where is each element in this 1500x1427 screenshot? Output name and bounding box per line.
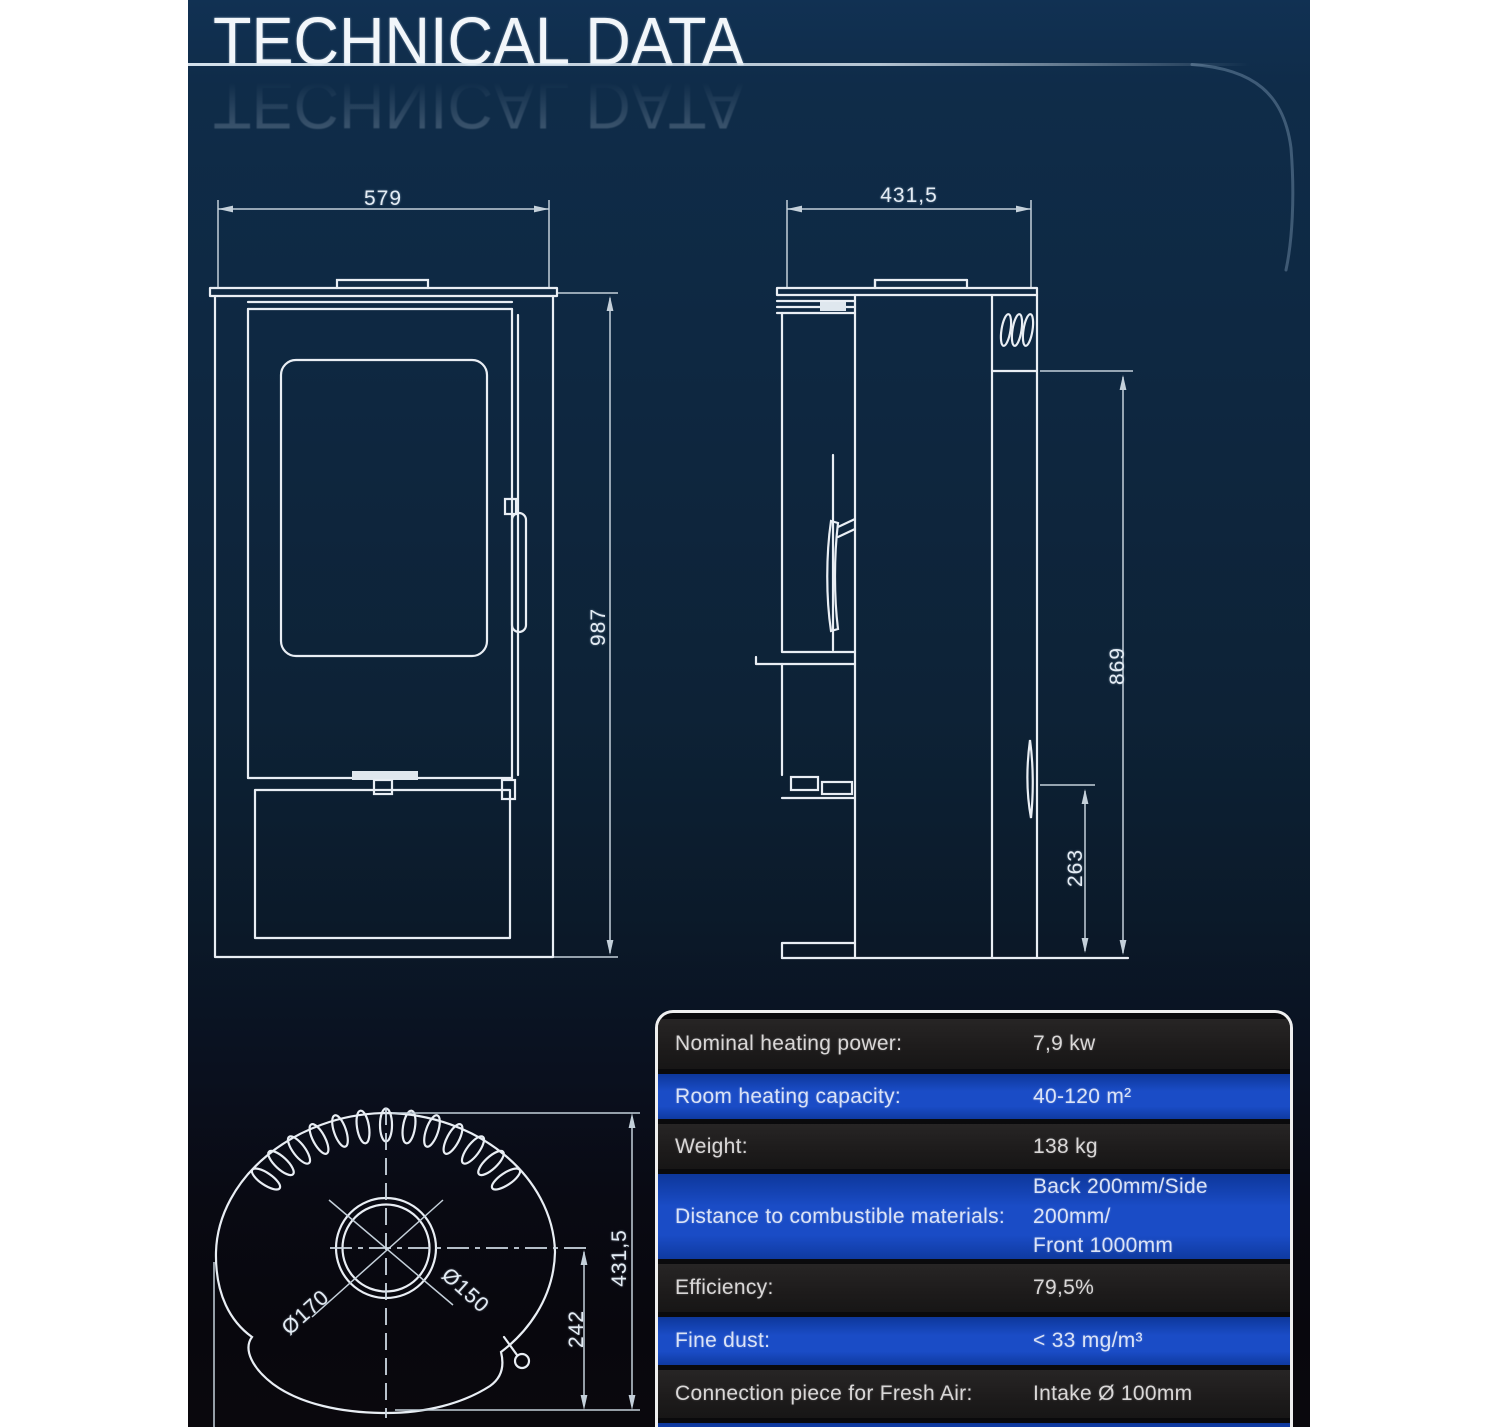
spec-row-weight: Weight: 138 kg xyxy=(658,1124,1290,1169)
swoosh-curve xyxy=(1192,65,1293,271)
spec-label: Room heating capacity: xyxy=(658,1085,1033,1109)
spec-row-distance-to-combustibles: Distance to combustible materials: Back … xyxy=(658,1174,1290,1259)
spec-row-efficiency: Efficiency: 79,5% xyxy=(658,1264,1290,1312)
side-view-drawing xyxy=(756,200,1133,958)
dim-top-center-offset: 242 xyxy=(565,1310,589,1348)
dim-side-base-height: 263 xyxy=(1064,849,1088,887)
technical-data-page: TECHNICAL DATA TECHNICAL DATA xyxy=(0,0,1500,1427)
spec-value-line2: Front 1000mm xyxy=(1033,1234,1173,1257)
spec-label: Fine dust: xyxy=(658,1329,1033,1353)
spec-value: < 33 mg/m³ xyxy=(1033,1326,1290,1355)
spec-row-fresh-air-connection: Connection piece for Fresh Air: Intake Ø… xyxy=(658,1370,1290,1418)
spec-value: Back 200mm/Side 200mm/ Front 1000mm xyxy=(1033,1172,1290,1260)
spec-value: 138 kg xyxy=(1033,1132,1290,1161)
dim-side-depth: 431,5 xyxy=(880,184,938,208)
dim-front-width: 579 xyxy=(364,187,402,211)
spec-row-room-heating-capacity: Room heating capacity: 40-120 m² xyxy=(658,1074,1290,1119)
spec-label: Distance to combustible materials: xyxy=(658,1205,1033,1229)
spec-label: Nominal heating power: xyxy=(658,1032,1033,1056)
dim-top-depth: 431,5 xyxy=(608,1229,632,1287)
spec-row-fine-dust: Fine dust: < 33 mg/m³ xyxy=(658,1317,1290,1365)
spec-value-line1: Back 200mm/Side 200mm/ xyxy=(1033,1175,1208,1227)
dim-side-height: 869 xyxy=(1106,647,1130,685)
spec-label: Efficiency: xyxy=(658,1276,1033,1300)
top-view-drawing xyxy=(214,1108,640,1427)
spec-label: Weight: xyxy=(658,1135,1033,1159)
spec-value: 40-120 m² xyxy=(1033,1082,1290,1111)
spec-row-partial xyxy=(658,1423,1290,1427)
spec-value: Intake Ø 100mm xyxy=(1033,1379,1290,1408)
spec-table: Nominal heating power: 7,9 kw Room heati… xyxy=(655,1010,1293,1427)
spec-row-nominal-heating-power: Nominal heating power: 7,9 kw xyxy=(658,1019,1290,1069)
spec-label: Connection piece for Fresh Air: xyxy=(658,1382,1033,1406)
dim-front-height: 987 xyxy=(587,608,611,646)
front-view-drawing xyxy=(210,200,618,957)
spec-value: 7,9 kw xyxy=(1033,1029,1290,1058)
spec-value: 79,5% xyxy=(1033,1273,1290,1302)
